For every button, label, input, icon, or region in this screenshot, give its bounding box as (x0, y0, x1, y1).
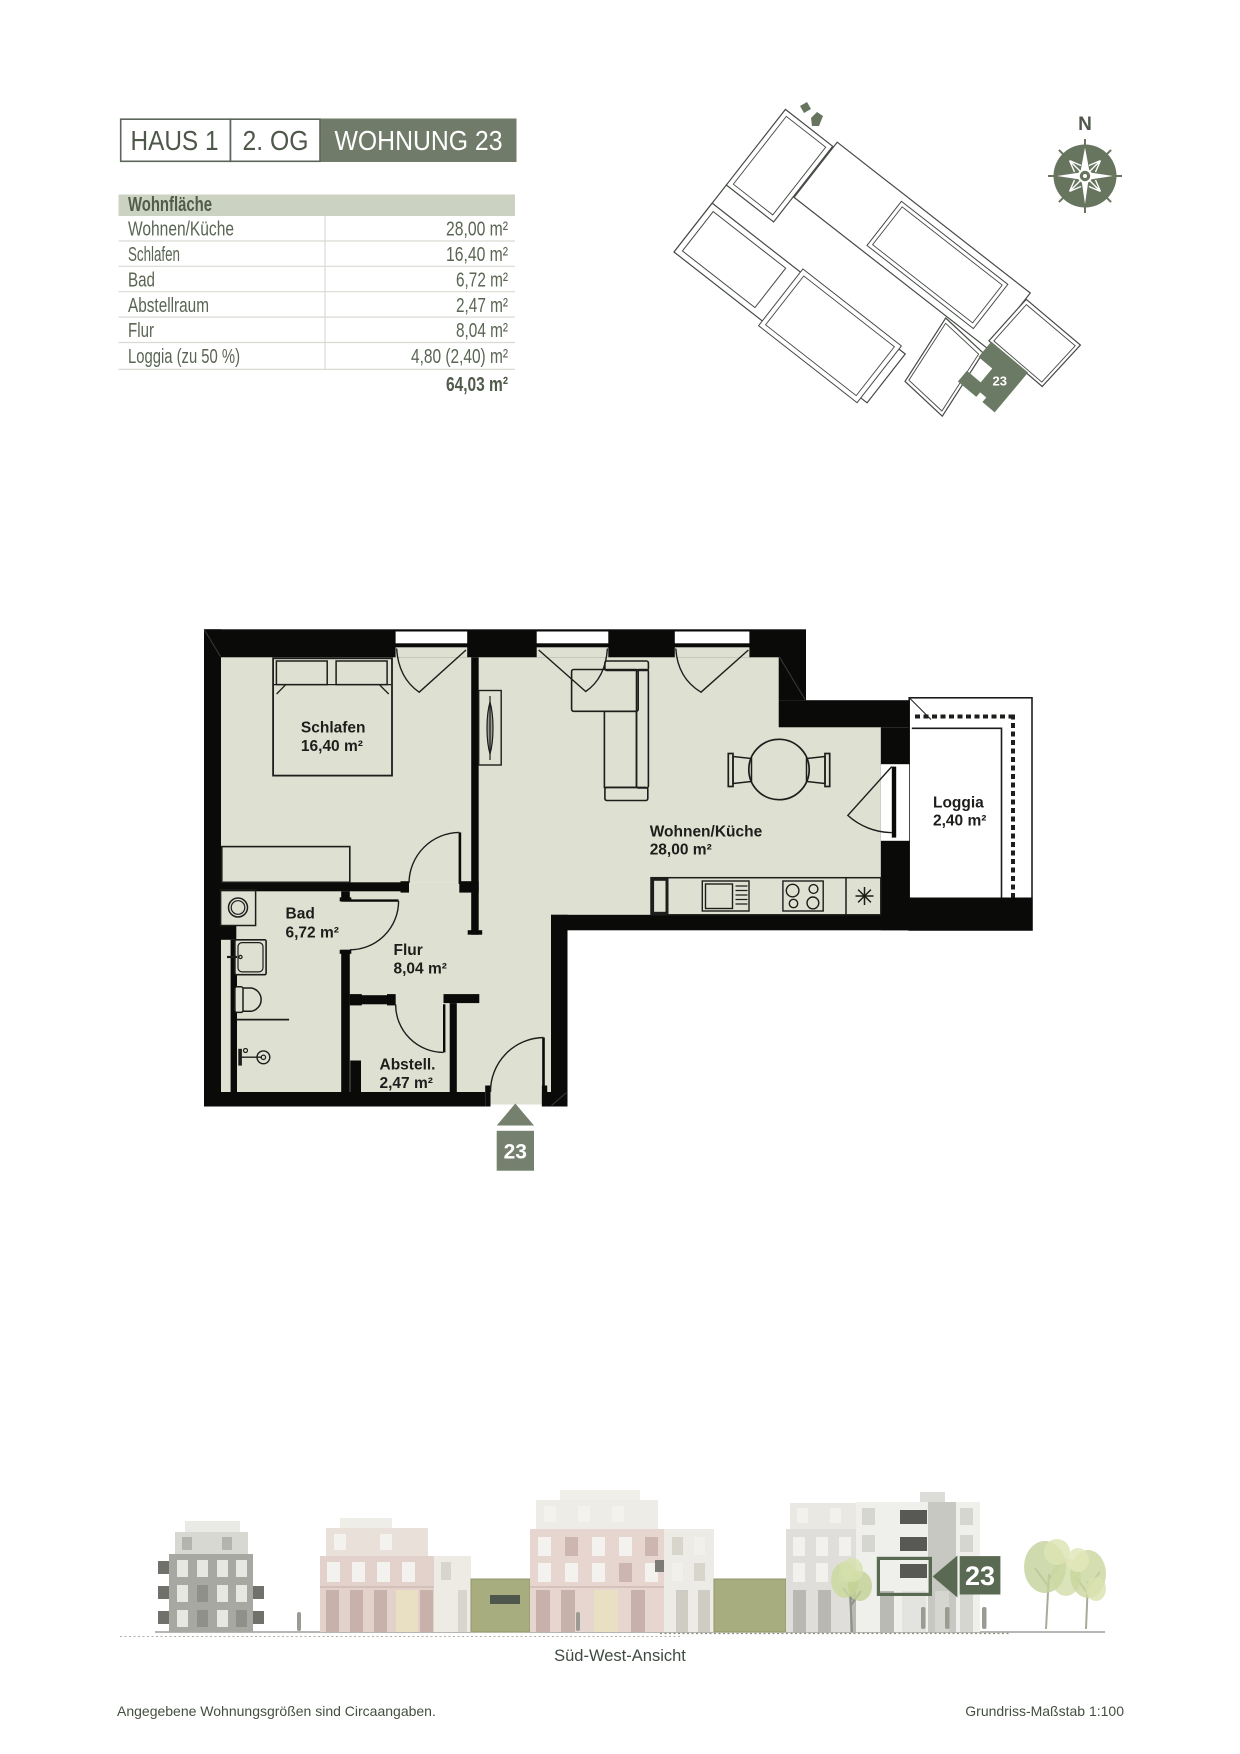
svg-text:8,04 m²: 8,04 m² (394, 961, 447, 978)
svg-text:WOHNUNG 23: WOHNUNG 23 (335, 125, 503, 156)
svg-text:23: 23 (504, 1141, 527, 1164)
svg-text:Grundriss-Maßstab 1:100: Grundriss-Maßstab 1:100 (965, 1703, 1124, 1719)
svg-text:23: 23 (965, 1561, 995, 1591)
svg-text:Flur: Flur (394, 942, 423, 959)
svg-text:Abstellraum: Abstellraum (128, 295, 209, 317)
svg-text:Schlafen: Schlafen (128, 244, 180, 266)
svg-text:Bad: Bad (286, 905, 315, 922)
svg-text:16,40 m²: 16,40 m² (446, 244, 508, 266)
svg-text:64,03 m²: 64,03 m² (446, 374, 508, 396)
svg-text:8,04 m²: 8,04 m² (456, 320, 508, 342)
svg-text:28,00 m²: 28,00 m² (446, 219, 508, 241)
svg-text:28,00 m²: 28,00 m² (650, 842, 712, 859)
svg-text:HAUS 1: HAUS 1 (131, 125, 219, 156)
svg-text:6,72 m²: 6,72 m² (456, 269, 508, 291)
svg-text:Wohnen/Küche: Wohnen/Küche (128, 219, 234, 241)
svg-text:4,80 (2,40) m²: 4,80 (2,40) m² (411, 346, 508, 368)
svg-text:Loggia: Loggia (933, 795, 984, 812)
svg-text:Bad: Bad (128, 269, 155, 291)
svg-text:2,47 m²: 2,47 m² (380, 1075, 433, 1092)
svg-text:Abstell.: Abstell. (380, 1057, 436, 1074)
svg-text:16,40 m²: 16,40 m² (301, 738, 363, 755)
svg-text:Flur: Flur (128, 320, 154, 342)
svg-text:Wohnen/Küche: Wohnen/Küche (650, 824, 763, 841)
svg-text:2. OG: 2. OG (243, 125, 309, 156)
svg-text:Angegebene Wohnungsgrößen sind: Angegebene Wohnungsgrößen sind Circaanga… (117, 1703, 436, 1719)
svg-text:2,40 m²: 2,40 m² (933, 813, 986, 830)
svg-text:Loggia (zu 50 %): Loggia (zu 50 %) (128, 346, 240, 368)
svg-text:N: N (1078, 114, 1092, 135)
svg-text:Schlafen: Schlafen (301, 720, 366, 737)
svg-text:Wohnfläche: Wohnfläche (128, 194, 212, 216)
svg-text:Süd-West-Ansicht: Süd-West-Ansicht (554, 1647, 686, 1665)
svg-text:6,72 m²: 6,72 m² (286, 925, 339, 942)
svg-text:2,47 m²: 2,47 m² (456, 295, 508, 317)
svg-text:23: 23 (993, 373, 1007, 388)
